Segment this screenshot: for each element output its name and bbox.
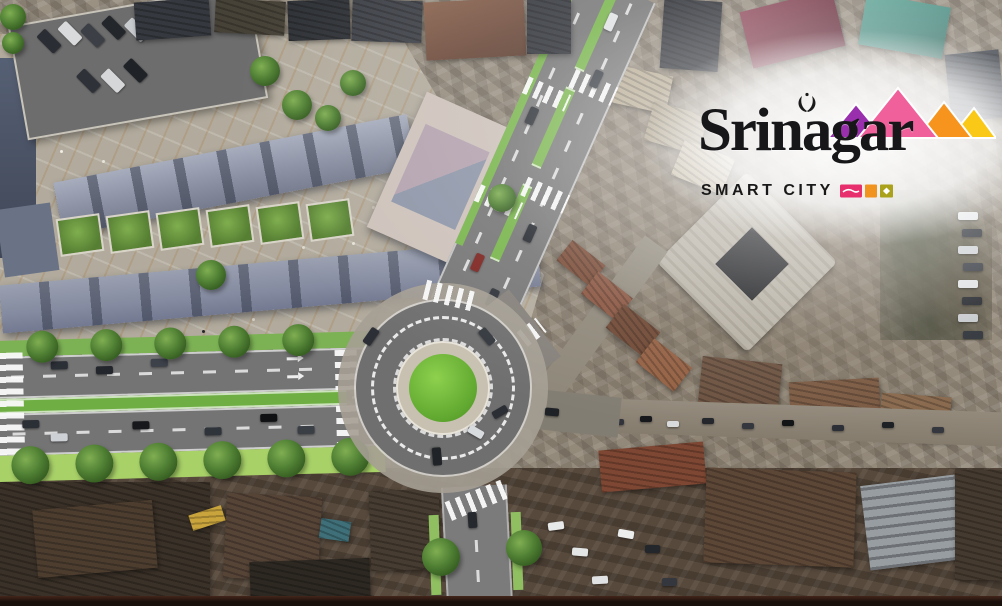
tree xyxy=(196,260,226,290)
car xyxy=(204,427,221,435)
parked-car xyxy=(76,68,101,93)
tree xyxy=(250,56,280,86)
square-badge xyxy=(865,185,877,198)
boulevard xyxy=(0,331,386,487)
tree xyxy=(506,530,542,566)
tree xyxy=(488,184,516,212)
tree xyxy=(422,538,460,576)
rust-rooftop xyxy=(703,467,856,567)
parked-car xyxy=(80,23,105,48)
car xyxy=(882,422,894,428)
tree-planter xyxy=(256,201,305,245)
zebra-crossing xyxy=(520,177,570,214)
car xyxy=(742,423,754,429)
tree-planter xyxy=(206,204,255,248)
parked-car xyxy=(958,280,978,288)
logo-badges xyxy=(840,183,894,199)
car xyxy=(22,420,39,428)
car xyxy=(432,447,443,466)
tree-planter xyxy=(106,210,155,254)
old-rooftop xyxy=(287,0,350,41)
car xyxy=(151,359,168,367)
parked-car xyxy=(963,263,983,271)
brown-hip-roof xyxy=(424,0,527,61)
teal-tarp xyxy=(319,518,351,542)
tree xyxy=(2,32,24,54)
car xyxy=(132,421,149,429)
parked-car xyxy=(100,68,125,93)
car xyxy=(524,106,540,126)
parked-car xyxy=(958,314,978,322)
car xyxy=(51,361,68,369)
car xyxy=(667,421,679,427)
car xyxy=(260,414,277,422)
car xyxy=(96,366,113,374)
car xyxy=(51,433,68,441)
tree xyxy=(282,90,312,120)
pedestrians xyxy=(60,150,63,153)
car xyxy=(572,547,589,556)
dark-rooftop xyxy=(32,500,157,578)
tree xyxy=(315,105,341,131)
car xyxy=(522,223,538,243)
car xyxy=(640,416,652,422)
srinagar-smart-city-logo: Srinagar SMART CITY xyxy=(698,84,1000,218)
car xyxy=(645,545,660,553)
parked-car xyxy=(123,58,148,83)
srinagar-smart-city-render: Srinagar SMART CITY xyxy=(0,0,1002,606)
tree-planter xyxy=(156,207,205,251)
parked-car xyxy=(36,28,61,53)
parked-car xyxy=(962,297,982,305)
old-rooftop xyxy=(527,0,571,54)
parked-car xyxy=(963,331,983,339)
parked-car xyxy=(101,15,126,40)
old-rooftop xyxy=(660,0,723,72)
tree xyxy=(0,4,26,30)
zebra-crossing xyxy=(0,352,25,459)
old-rooftop xyxy=(214,0,286,36)
tree-planter xyxy=(56,213,105,257)
logo-tagline-row: SMART CITY xyxy=(701,182,894,200)
left-building-roof xyxy=(0,203,59,278)
old-rooftop xyxy=(134,0,211,41)
roundabout-green-island xyxy=(409,354,477,422)
lane-arrow xyxy=(287,357,298,360)
car xyxy=(702,418,714,424)
bottom-border-band xyxy=(0,596,1002,606)
car xyxy=(545,407,560,416)
car xyxy=(662,578,677,586)
tree-planter xyxy=(306,198,355,242)
car xyxy=(832,425,844,431)
old-rooftop xyxy=(351,0,422,43)
dark-rooftop xyxy=(955,470,1002,580)
parked-car xyxy=(57,21,82,46)
car xyxy=(782,420,794,426)
parked-car xyxy=(958,246,978,254)
car xyxy=(467,512,477,529)
silver-rooftop xyxy=(860,475,965,571)
lane-arrow xyxy=(287,375,298,378)
logo-tagline: SMART CITY xyxy=(701,182,834,200)
logo-wordmark: Srinagar xyxy=(698,100,912,161)
car xyxy=(297,426,314,434)
parked-car xyxy=(962,229,982,237)
car xyxy=(592,576,608,585)
car xyxy=(932,427,944,433)
tree xyxy=(340,70,366,96)
